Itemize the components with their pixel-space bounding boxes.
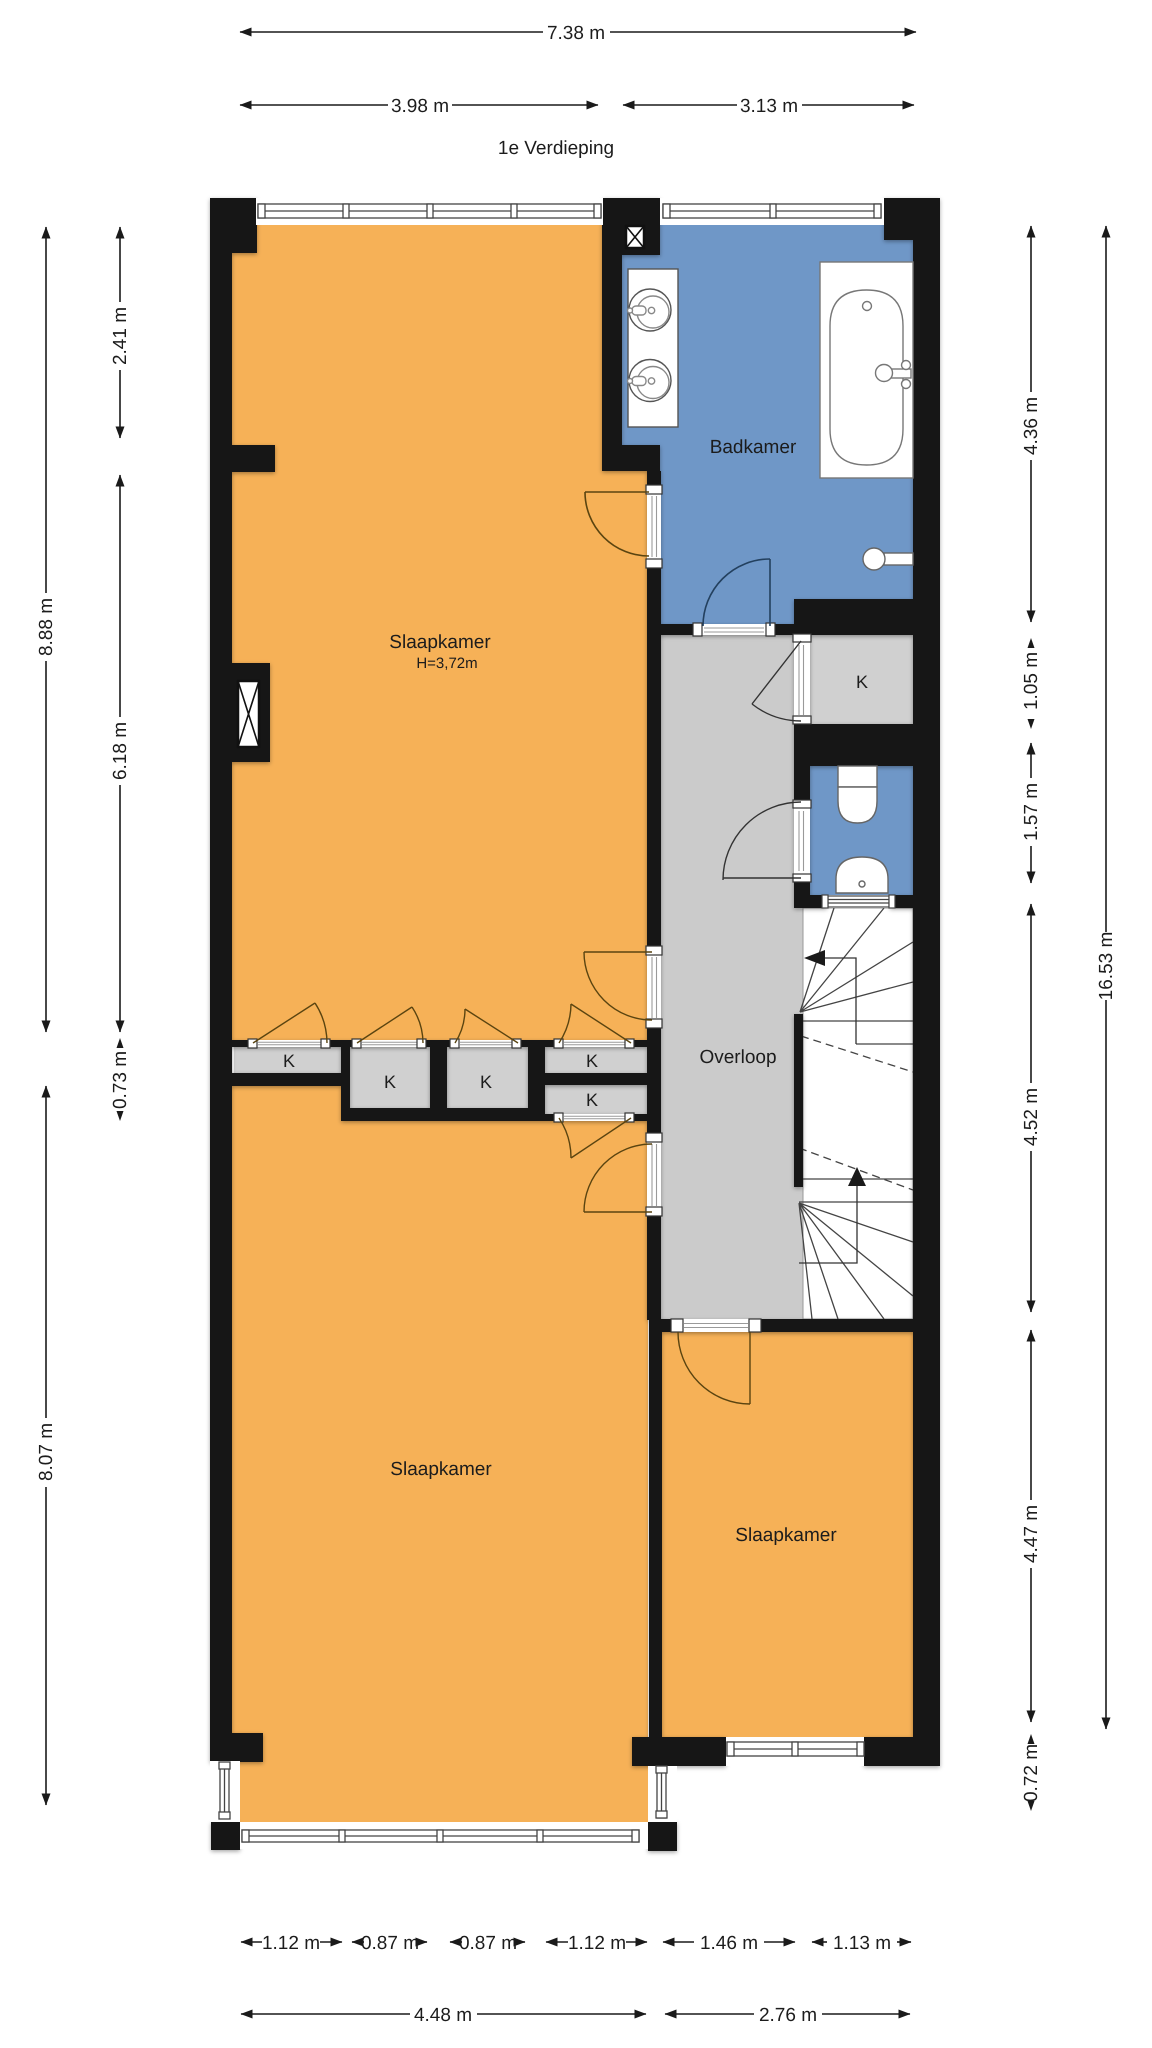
svg-text:7.38 m: 7.38 m <box>547 23 605 44</box>
svg-text:1.46 m: 1.46 m <box>700 1933 758 1954</box>
svg-text:2.41 m: 2.41 m <box>110 307 131 365</box>
svg-text:Badkamer: Badkamer <box>710 437 797 458</box>
svg-text:2.76 m: 2.76 m <box>759 2005 817 2026</box>
svg-text:1.12 m: 1.12 m <box>262 1933 320 1954</box>
svg-text:0.72 m: 0.72 m <box>1021 1744 1042 1802</box>
svg-text:0.87 m: 0.87 m <box>361 1933 419 1954</box>
svg-text:4.48 m: 4.48 m <box>414 2005 472 2026</box>
svg-text:8.88 m: 8.88 m <box>36 598 57 656</box>
svg-text:1.05 m: 1.05 m <box>1021 652 1042 710</box>
svg-text:K: K <box>480 1072 492 1092</box>
svg-text:1.13 m: 1.13 m <box>833 1933 891 1954</box>
svg-text:Slaapkamer: Slaapkamer <box>389 632 491 653</box>
svg-text:4.52 m: 4.52 m <box>1021 1088 1042 1146</box>
svg-text:3.98 m: 3.98 m <box>391 96 449 117</box>
svg-text:4.47 m: 4.47 m <box>1021 1505 1042 1563</box>
svg-text:1e Verdieping: 1e Verdieping <box>498 138 614 159</box>
svg-text:H=3,72m: H=3,72m <box>416 655 477 672</box>
svg-text:6.18 m: 6.18 m <box>110 722 131 780</box>
svg-text:Slaapkamer: Slaapkamer <box>735 1525 837 1546</box>
svg-text:K: K <box>586 1051 598 1071</box>
svg-text:K: K <box>384 1072 396 1092</box>
svg-text:8.07 m: 8.07 m <box>36 1423 57 1481</box>
svg-text:Overloop: Overloop <box>699 1047 776 1068</box>
svg-text:K: K <box>586 1090 598 1110</box>
svg-text:16.53 m: 16.53 m <box>1096 932 1117 1001</box>
svg-text:Slaapkamer: Slaapkamer <box>390 1459 492 1480</box>
svg-text:4.36 m: 4.36 m <box>1021 397 1042 455</box>
svg-text:1.57 m: 1.57 m <box>1021 783 1042 841</box>
svg-text:0.73 m: 0.73 m <box>110 1051 131 1109</box>
svg-text:0.87 m: 0.87 m <box>459 1933 517 1954</box>
svg-text:K: K <box>283 1051 295 1071</box>
svg-text:K: K <box>856 672 868 692</box>
svg-text:1.12 m: 1.12 m <box>568 1933 626 1954</box>
svg-text:3.13 m: 3.13 m <box>740 96 798 117</box>
